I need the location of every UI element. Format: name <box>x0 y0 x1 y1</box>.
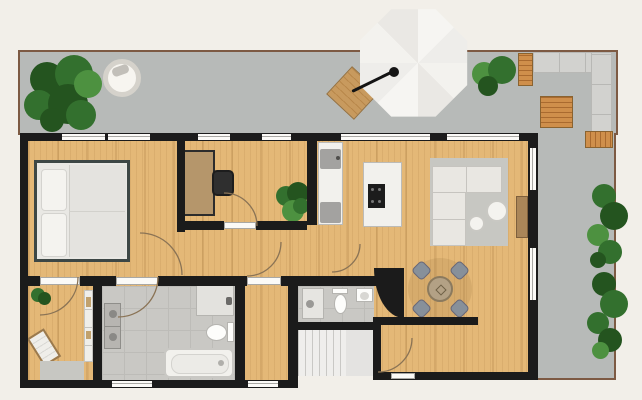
bathroom-window <box>112 381 152 387</box>
coffee-table-large <box>486 200 508 222</box>
hedge-plant <box>590 252 606 268</box>
sofa-cushion-line <box>433 219 465 220</box>
sofa-cushion-line <box>466 167 467 192</box>
wall-kitchen-west <box>307 141 317 225</box>
cooktop-burner <box>371 200 374 203</box>
kitchen-appliance <box>320 202 341 223</box>
washer-dryer-stack <box>104 303 121 349</box>
staircase-open-edge <box>298 376 373 390</box>
wall-corridor-south-b <box>80 276 116 286</box>
bathroom-vanity-sink <box>196 284 234 316</box>
wc-sink-basin <box>360 292 369 300</box>
storage-window <box>248 381 278 387</box>
wall-hall-north <box>376 317 478 325</box>
shelf-line <box>85 309 92 310</box>
wall-office-south-b <box>256 221 307 230</box>
wall-office-south-a <box>177 221 224 230</box>
terrace-plant-leaf <box>40 108 64 132</box>
vanity-faucet <box>226 297 232 305</box>
dining-table-center <box>435 284 446 295</box>
storage-door-sill <box>247 277 281 285</box>
wall-stair-east <box>373 317 381 380</box>
bathtub <box>164 348 234 378</box>
living-window <box>447 134 519 140</box>
bathroom-toilet-bowl <box>206 324 227 341</box>
bedroom-window <box>108 134 150 140</box>
staircase-landing <box>346 330 373 376</box>
shelf-line <box>85 327 92 328</box>
washer-divider <box>105 326 120 327</box>
dining-table <box>427 276 453 302</box>
double-bed <box>34 160 130 262</box>
floor-plan-canvas <box>0 0 642 400</box>
wall-corridor-south-c <box>158 276 247 286</box>
island-cooktop <box>368 184 385 208</box>
walkin-rug <box>40 361 84 380</box>
wall-corridor-south-a <box>28 276 40 286</box>
office-window <box>198 134 230 140</box>
office-door-sill <box>224 222 256 229</box>
cooktop-burner <box>371 188 374 191</box>
cooktop-burner <box>378 188 381 191</box>
bedroom-window <box>62 134 105 140</box>
outdoor-side-table <box>585 131 613 148</box>
bed-pillow <box>41 169 67 211</box>
coffee-table-small <box>468 215 485 232</box>
bathroom-door-sill <box>116 277 158 285</box>
living-sofa-top <box>432 166 502 193</box>
wall-bedroom-office <box>177 141 185 232</box>
shelf-line <box>85 345 92 346</box>
kitchen-faucet <box>336 156 340 160</box>
bathtub-drain <box>218 360 224 366</box>
office-desk <box>183 150 215 216</box>
cooktop-burner <box>378 200 381 203</box>
terrace-bush <box>478 76 498 96</box>
umbrella-pole <box>389 67 399 77</box>
shelf-item <box>86 331 91 339</box>
wall-wc-south <box>298 322 374 330</box>
washer-door <box>109 310 117 318</box>
living-window-east <box>530 248 536 300</box>
outdoor-side-table <box>518 53 533 86</box>
kitchen-window <box>341 134 430 140</box>
wall-shelf <box>84 290 93 362</box>
wall-storage-east <box>288 276 298 388</box>
small-plant-leaf <box>38 292 51 305</box>
wall-bath-east <box>235 286 245 388</box>
terrace-plant-leaf <box>74 70 102 98</box>
office-chair <box>212 170 234 196</box>
staircase-treads <box>298 330 346 376</box>
wall-left <box>20 133 28 388</box>
walkin-door-sill <box>40 277 80 285</box>
wc-washer-door <box>306 300 314 308</box>
bed-duvet-fold <box>69 211 125 212</box>
living-sofa-left <box>432 192 466 246</box>
shelf-item <box>86 297 91 307</box>
bed-pillow <box>41 213 67 257</box>
wall-walkin-bath <box>93 286 102 388</box>
wc-washing-machine <box>302 288 324 319</box>
terrace-plant-leaf <box>66 100 96 130</box>
office-window <box>262 134 291 140</box>
wc-toilet-bowl <box>334 294 347 314</box>
entrance-door-sill <box>391 373 415 379</box>
terrace-door-east <box>530 148 536 190</box>
sideboard <box>516 196 528 238</box>
dryer-door <box>109 333 117 341</box>
outdoor-coffee-table <box>540 96 573 128</box>
wc-wall-sink <box>356 288 373 302</box>
bathroom-toilet-tank <box>227 322 234 342</box>
hedge-plant <box>592 342 609 359</box>
